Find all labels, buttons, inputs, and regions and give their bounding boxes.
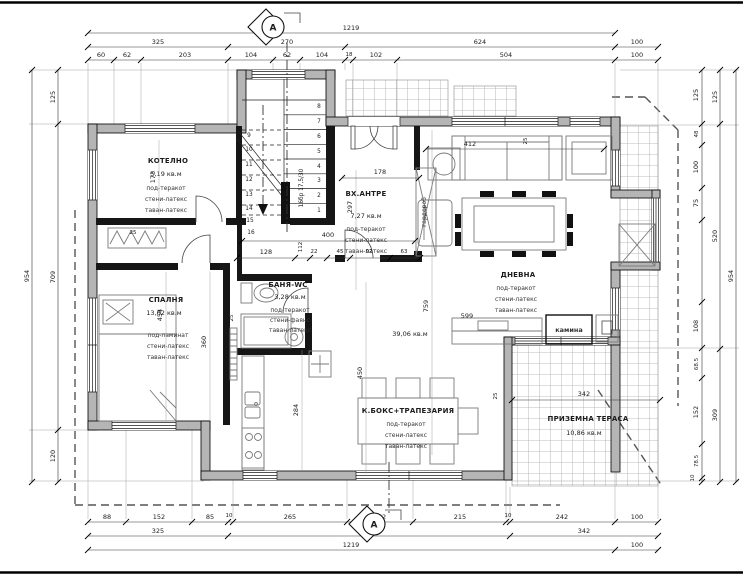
room-label-dnevna: ДНЕВНА под-теракот стени-латекс таван-ла… <box>495 271 537 314</box>
dim-label: 152 <box>692 406 700 418</box>
svg-text:ПРИЗЕМНА ТЕРАСА: ПРИЗЕМНА ТЕРАСА <box>548 415 629 423</box>
dim-label: 325 <box>152 527 164 535</box>
svg-text:13,62 кв.м: 13,62 кв.м <box>146 309 181 317</box>
dim-label: 128 <box>260 248 272 256</box>
dim-label: 242 <box>556 513 568 521</box>
window-boiler-top <box>125 124 195 133</box>
radiator-corridor <box>108 228 166 248</box>
svg-text:стени-фаянс: стени-фаянс <box>270 317 310 324</box>
dim-label: 709 <box>49 271 57 283</box>
wall-bath-left <box>237 225 242 274</box>
wall-stair-left <box>237 70 246 133</box>
wall-terrace-left <box>504 337 512 480</box>
floor-plan-drawing: 1219 325 270 624 100 60 62 203 104 62 10… <box>0 0 743 576</box>
stair-number: 12 <box>245 177 253 183</box>
entry-porch-hatch-2 <box>454 86 516 116</box>
wall-boiler-right <box>236 126 242 225</box>
dim-label: 504 <box>500 51 512 59</box>
wardrobe-label: гардероб <box>421 197 428 227</box>
dim-label: 125 <box>49 91 57 103</box>
dim-label: 759 <box>422 300 430 312</box>
dim-label: 75 <box>692 199 700 207</box>
stair-number: 8 <box>317 104 321 110</box>
window-top-small <box>570 117 600 126</box>
dim-label: 325 <box>152 38 164 46</box>
dims-left: 954 125 709 120 <box>23 67 61 485</box>
svg-text:под-теракот: под-теракот <box>496 285 536 292</box>
dim-label: 450 <box>356 367 364 379</box>
svg-text:таван-латекс: таван-латекс <box>495 307 537 314</box>
dim-label: 360 <box>200 336 208 348</box>
dim-label: 10 <box>690 474 696 481</box>
dim-label: 954 <box>23 270 31 282</box>
room-label-kotelno: КОТЕЛНО 5,19 кв.м под-теракот стени-лате… <box>145 157 188 214</box>
door-boiler <box>196 196 222 222</box>
dim-label: 284 <box>292 404 300 416</box>
section-label: A <box>371 521 378 531</box>
dim-label: 25 <box>229 314 235 321</box>
dim-label: 18 <box>346 52 353 58</box>
stair-note: 16бр 17,5/30 <box>299 168 305 207</box>
living-area-label: 39,06 кв.м <box>392 330 427 338</box>
dim-label: 203 <box>179 51 191 59</box>
dim-label: 1219 <box>343 541 360 549</box>
dim-label: 85 <box>206 513 214 521</box>
wall-bedroom-right <box>223 263 230 425</box>
dim-label: 125 <box>692 89 700 101</box>
fireplace-label: камина <box>555 326 583 334</box>
dim-label: 25 <box>493 392 499 399</box>
stair-arrow <box>258 204 268 215</box>
stove <box>242 428 264 468</box>
sofa-right <box>566 136 612 180</box>
dim-label: 100 <box>631 541 643 549</box>
window-dining-bottom <box>356 471 462 480</box>
wall-bedroom-top-a <box>96 263 178 270</box>
dim-label: 104 <box>316 51 328 59</box>
plant-stand <box>428 148 460 180</box>
dim-label: 60 <box>97 51 105 59</box>
dim-label: 112 <box>298 242 304 253</box>
dim-label: 92 <box>366 249 373 255</box>
dims-top: 1219 325 270 624 100 60 62 203 104 62 10… <box>85 24 661 63</box>
svg-text:под-теракот: под-теракот <box>346 226 386 233</box>
wall-bath-bottom <box>237 348 312 355</box>
svg-text:таван-латекс: таван-латекс <box>145 207 187 214</box>
svg-text:ВХ.АНТРЕ: ВХ.АНТРЕ <box>346 190 387 198</box>
dim-label: 48 <box>694 130 700 137</box>
dim-label: 88 <box>103 513 111 521</box>
svg-text:под-теракот: под-теракот <box>146 185 186 192</box>
stair-number: 7 <box>317 119 321 125</box>
wall-hall-bottom-a <box>335 255 345 262</box>
stair-number: 4 <box>317 164 321 170</box>
dim-label: 599 <box>461 312 473 320</box>
svg-text:под-теракот: под-теракот <box>386 421 426 428</box>
dim-label: 10 <box>226 513 233 519</box>
dim-label: 265 <box>284 513 296 521</box>
dim-label: 624 <box>474 38 486 46</box>
stair-number: 13 <box>245 192 253 198</box>
dim-label: 125 <box>711 91 719 103</box>
dim-label: 100 <box>631 51 643 59</box>
svg-text:КОТЕЛНО: КОТЕЛНО <box>148 157 188 165</box>
dim-label: 25 <box>130 230 137 236</box>
wall-stair-bottom-b <box>290 218 335 225</box>
stair-number: 11 <box>245 162 253 168</box>
svg-text:К.БОКС+ТРАПЕЗАРИЯ: К.БОКС+ТРАПЕЗАРИЯ <box>362 407 455 415</box>
radiator-bedroom <box>230 328 237 380</box>
svg-text:стени-латекс: стени-латекс <box>345 237 387 244</box>
svg-text:ДНЕВНА: ДНЕВНА <box>501 271 536 279</box>
window-boiler-left <box>88 150 97 200</box>
dim-label: 173 <box>149 171 157 183</box>
section-label: A <box>270 24 277 34</box>
entrance-door <box>348 117 400 149</box>
wardrobe: гардероб <box>416 168 436 256</box>
door-bedroom <box>182 235 210 263</box>
svg-text:3,28 кв.м: 3,28 кв.м <box>274 293 305 301</box>
dim-label: 954 <box>727 270 735 282</box>
dim-label: 25 <box>523 137 529 144</box>
stair-number: 15 <box>246 218 254 224</box>
wall-stair-right-low <box>326 126 335 225</box>
window-bay <box>652 198 660 262</box>
stair-number: 1 <box>317 208 321 214</box>
svg-text:под-теракот: под-теракот <box>270 307 310 314</box>
wall-stair-bottom-a <box>237 218 246 225</box>
stair-number: 14 <box>245 206 253 212</box>
stair-number: 9 <box>247 133 251 139</box>
table-living <box>455 191 573 257</box>
svg-text:стени-латекс: стени-латекс <box>147 343 189 350</box>
svg-text:7,27 кв.м: 7,27 кв.м <box>350 212 381 220</box>
dim-label: 309 <box>711 409 719 421</box>
wall-hall-right <box>414 126 420 170</box>
stair-number: 5 <box>317 149 321 155</box>
svg-text:БАНЯ-WC: БАНЯ-WC <box>268 281 307 289</box>
room-label-antre: ВХ.АНТРЕ 7,27 кв.м под-теракот стени-лат… <box>345 190 387 255</box>
dim-label: 297 <box>346 201 354 213</box>
dim-label: 412 <box>464 140 476 148</box>
window-bedroom-bottom <box>112 421 176 430</box>
dim-label: 45 <box>337 249 344 255</box>
window-bedroom-left <box>88 298 97 392</box>
svg-text:10,86 кв.м: 10,86 кв.м <box>566 429 601 437</box>
svg-text:под-ламинат: под-ламинат <box>148 332 189 339</box>
svg-text:стени-латекс: стени-латекс <box>145 196 187 203</box>
dim-label: 104 <box>245 51 257 59</box>
window-stair-top <box>252 70 305 79</box>
dims-right: 125 48 100 75 108 68.5 152 78.5 10 125 5… <box>690 67 739 485</box>
dim-label: 342 <box>578 527 590 535</box>
stairs: 1 2 3 4 5 6 7 8 9 10 11 12 13 14 15 16 1… <box>236 79 326 236</box>
floor-plan-page: 1219 325 270 624 100 60 62 203 104 62 10… <box>0 0 743 576</box>
stair-number: 16 <box>247 230 255 236</box>
dim-label: 178 <box>374 168 386 176</box>
dim-label: 100 <box>692 161 700 173</box>
stair-wall-stub <box>281 182 290 224</box>
dim-label: 120 <box>49 450 57 462</box>
dim-label: 78.5 <box>694 454 700 467</box>
dim-label: 342 <box>578 390 590 398</box>
dishwasher <box>309 351 331 377</box>
window-living-top <box>452 117 558 126</box>
dim-label: 62 <box>123 51 131 59</box>
svg-text:стени-латекс: стени-латекс <box>495 296 537 303</box>
dim-label: 454 <box>156 309 164 321</box>
dim-label: 1219 <box>343 24 360 32</box>
stair-number: 3 <box>317 178 321 184</box>
svg-text:стени-латекс: стени-латекс <box>385 432 427 439</box>
stair-number: 6 <box>317 134 321 140</box>
dim-label: 152 <box>153 513 165 521</box>
section-marker-bottom: A <box>349 506 401 542</box>
dim-label: 520 <box>711 230 719 242</box>
room-label-banya: БАНЯ-WC 3,28 кв.м под-теракот стени-фаян… <box>268 281 311 334</box>
dim-label: 100 <box>631 513 643 521</box>
wall-bath-top <box>237 274 312 281</box>
dim-label: 10 <box>505 513 512 519</box>
dim-label: 215 <box>454 513 466 521</box>
stair-number: 2 <box>317 193 321 199</box>
dim-label: 68.5 <box>694 357 700 370</box>
stair-number: 10 <box>245 147 253 153</box>
svg-text:таван-латекс: таван-латекс <box>147 354 189 361</box>
dim-label: 22 <box>311 249 318 255</box>
svg-text:таван-латекс: таван-латекс <box>385 443 427 450</box>
window-kitchen-bottom <box>243 471 277 480</box>
dim-label: 102 <box>370 51 382 59</box>
svg-text:таван-латекс: таван-латекс <box>269 327 311 334</box>
room-label-spalnya: СПАЛНЯ 13,62 кв.м под-ламинат стени-лате… <box>146 296 189 361</box>
dim-label: 400 <box>322 231 334 239</box>
dim-label: 100 <box>631 38 643 46</box>
dim-label: 63 <box>401 249 408 255</box>
wall-boiler-bottom-a <box>96 218 196 225</box>
room-label-kboks: К.БОКС+ТРАПЕЗАРИЯ под-теракот стени-лате… <box>362 407 455 450</box>
dim-label: 108 <box>692 320 700 332</box>
